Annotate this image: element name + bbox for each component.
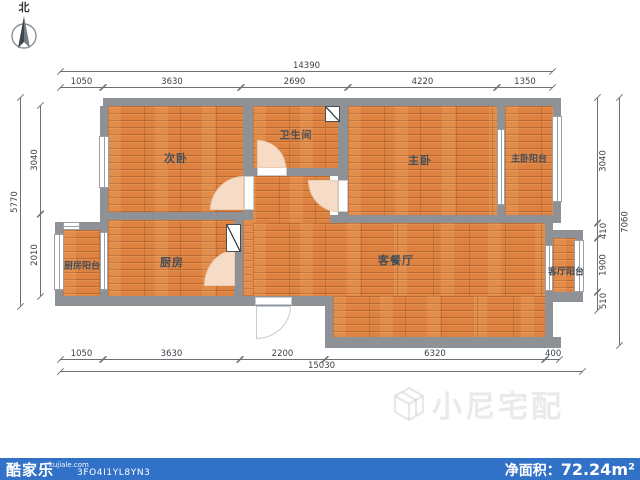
- dimension-top-segment: 4220: [348, 87, 497, 88]
- room-label-kitchen: 厨房: [160, 254, 184, 270]
- dimension-left-segment: 3040: [40, 106, 41, 214]
- window: [54, 234, 64, 290]
- wall: [497, 106, 505, 130]
- window: [99, 136, 109, 188]
- dimension-bottom-overall: 15030: [60, 371, 583, 372]
- room-label-bathroom: 卫生间: [280, 127, 313, 142]
- watermark-cube-icon: [392, 386, 426, 422]
- plan-code: 3FO4I1YL8YN3: [77, 468, 151, 478]
- north-label: 北: [6, 2, 42, 14]
- dimension-top-segment: 1050: [60, 87, 103, 88]
- watermark: 小尼宅配: [392, 382, 564, 426]
- wall: [330, 215, 561, 223]
- wall: [325, 337, 561, 348]
- compass-icon: [8, 14, 40, 52]
- dimension-right-overall: 7060: [619, 98, 620, 345]
- dimension-bottom-segment: 1050: [60, 359, 103, 360]
- room-living-dining-floor: [333, 296, 545, 337]
- wall: [100, 212, 253, 220]
- bathroom-fixture-icon: [325, 106, 340, 122]
- door-leaf: [257, 167, 287, 176]
- net-area-label: 净面积：: [505, 463, 561, 479]
- watermark-text: 小尼宅配: [432, 382, 564, 426]
- window: [552, 116, 562, 202]
- window: [63, 222, 80, 230]
- dimension-top-segment: 2690: [241, 87, 348, 88]
- net-area: 净面积：72.24m²: [505, 460, 635, 480]
- dimension-top-segment: 3630: [103, 87, 241, 88]
- entry-door-leaf: [255, 297, 292, 305]
- wall: [497, 204, 505, 215]
- floorplan-screenshot: 北: [0, 0, 640, 480]
- dimension-bottom-segment: 6320: [325, 359, 545, 360]
- room-label-kitchen-balcony: 厨房阳台: [64, 259, 100, 272]
- dimension-top-segment: 1350: [497, 87, 553, 88]
- footer-bar: 酷家乐 kujiale.com 3FO4I1YL8YN3 净面积：72.24m²: [0, 458, 640, 480]
- dimension-left-segment: 2010: [40, 214, 41, 296]
- wall: [103, 98, 561, 106]
- door-leaf: [244, 176, 254, 210]
- room-label-master-balcony: 主卧阳台: [511, 152, 547, 165]
- dimension-left-overall: 5770: [20, 98, 21, 306]
- room-label-second-bedroom: 次卧: [164, 150, 188, 166]
- wall: [553, 292, 583, 302]
- door-leaf: [338, 180, 348, 212]
- dimension-right-segment: 3040: [597, 98, 598, 223]
- kujiale-logo: 酷家乐: [6, 459, 54, 480]
- dimension-top-overall: 14390: [60, 71, 553, 72]
- dimension-bottom-segment: 400: [545, 359, 560, 360]
- north-indicator: 北: [6, 2, 42, 56]
- dimension-bottom-segment: 2200: [240, 359, 325, 360]
- entry-door-swing-arc: [256, 306, 291, 339]
- dimension-right-segment: 1900: [597, 238, 598, 292]
- folded-door-icon: [226, 224, 241, 252]
- sliding-door: [497, 129, 505, 205]
- dimension-bottom-segment: 3630: [103, 359, 240, 360]
- sliding-door: [100, 232, 108, 290]
- room-label-living-dining: 客餐厅: [378, 252, 414, 268]
- room-label-master-bedroom: 主卧: [408, 152, 432, 168]
- net-area-value: 72.24m²: [561, 460, 635, 479]
- room-label-living-balcony: 客厅阳台: [548, 265, 584, 278]
- dimension-right-segment: 510: [597, 292, 598, 310]
